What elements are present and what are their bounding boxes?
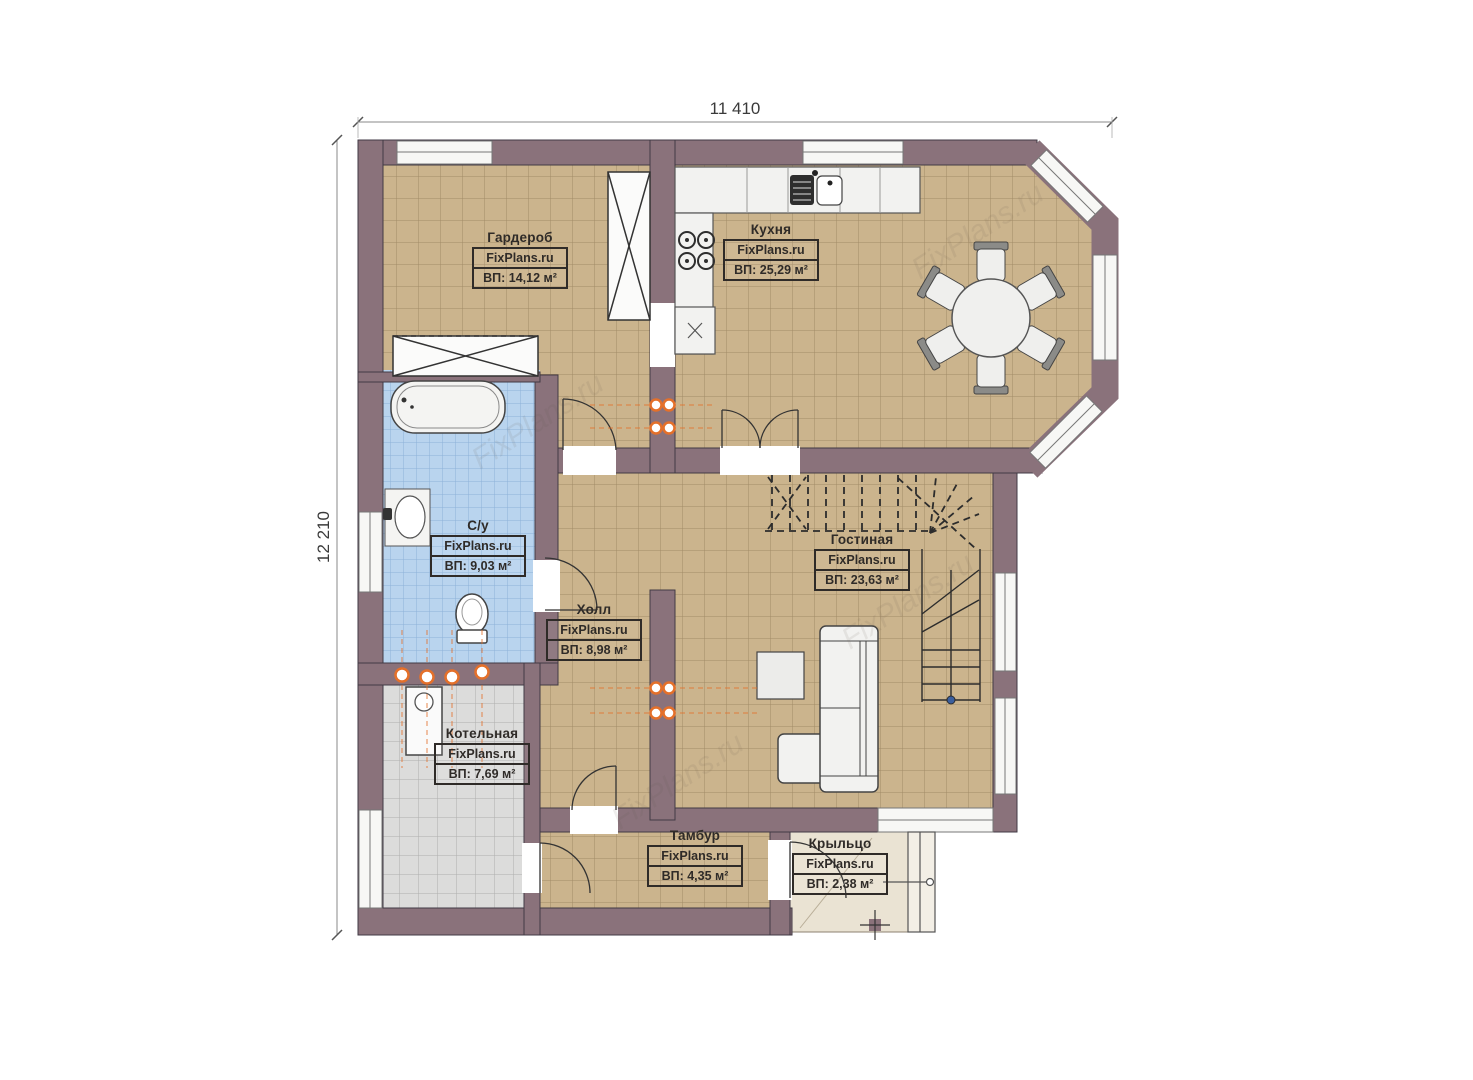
stair-newel-marker	[947, 696, 955, 704]
room-name: Гостиная	[814, 532, 910, 547]
room-info-box: FixPlans.ru ВП: 7,69 м²	[434, 743, 530, 785]
room-name: Котельная	[434, 726, 530, 741]
room-name: С/у	[430, 518, 526, 533]
room-brand: FixPlans.ru	[432, 537, 524, 555]
room-label-hall: Холл FixPlans.ru ВП: 8,98 м²	[546, 602, 642, 661]
room-area: ВП: 9,03 м²	[432, 555, 524, 575]
room-brand: FixPlans.ru	[725, 241, 817, 259]
toilet	[456, 594, 488, 643]
room-info-box: FixPlans.ru ВП: 9,03 м²	[430, 535, 526, 577]
room-name: Холл	[546, 602, 642, 617]
room-brand: FixPlans.ru	[649, 847, 741, 865]
room-area: ВП: 4,35 м²	[649, 865, 741, 885]
dimension-height-label: 12 210	[314, 511, 333, 563]
room-info-box: FixPlans.ru ВП: 8,98 м²	[546, 619, 642, 661]
floor-plan-drawing: 11 410 12 210 FixPlans.ru FixPlans.ru Fi…	[0, 0, 1473, 1080]
room-brand: FixPlans.ru	[548, 621, 640, 639]
opening-wardrobe-kitchen	[650, 303, 675, 367]
room-brand: FixPlans.ru	[436, 745, 528, 763]
room-area: ВП: 14,12 м²	[474, 267, 566, 287]
bathroom-sink	[383, 489, 430, 546]
room-area: ВП: 8,98 м²	[548, 639, 640, 659]
window-living-right-1	[995, 573, 1016, 671]
room-area: ВП: 25,29 м²	[725, 259, 817, 279]
room-label-porch: Крыльцо FixPlans.ru ВП: 2,38 м²	[792, 836, 888, 895]
room-label-living: Гостиная FixPlans.ru ВП: 23,63 м²	[814, 532, 910, 591]
room-brand: FixPlans.ru	[816, 551, 908, 569]
window-living-right-2	[995, 698, 1016, 794]
room-brand: FixPlans.ru	[794, 855, 886, 873]
room-area: ВП: 7,69 м²	[436, 763, 528, 783]
window-kitchen-top	[803, 141, 903, 164]
window-living-bottom	[878, 808, 993, 832]
room-info-box: FixPlans.ru ВП: 4,35 м²	[647, 845, 743, 887]
dining-table	[952, 279, 1030, 357]
window-wardrobe-top	[397, 141, 492, 164]
room-name: Гардероб	[472, 230, 568, 245]
room-name: Кухня	[723, 222, 819, 237]
floor-plan-canvas: 11 410 12 210 FixPlans.ru FixPlans.ru Fi…	[0, 0, 1473, 1080]
wardrobe-cabinet-tall	[608, 172, 650, 320]
room-info-box: FixPlans.ru ВП: 14,12 м²	[472, 247, 568, 289]
dimension-width-label: 11 410	[710, 99, 761, 118]
room-label-wardrobe: Гардероб FixPlans.ru ВП: 14,12 м²	[472, 230, 568, 289]
room-brand: FixPlans.ru	[474, 249, 566, 267]
room-area: ВП: 23,63 м²	[816, 569, 908, 589]
side-table	[757, 652, 804, 699]
room-info-box: FixPlans.ru ВП: 25,29 м²	[723, 239, 819, 281]
room-label-bathroom: С/у FixPlans.ru ВП: 9,03 м²	[430, 518, 526, 577]
room-label-tambour: Тамбур FixPlans.ru ВП: 4,35 м²	[647, 828, 743, 887]
boiler-floor	[383, 670, 524, 918]
window-bathroom-left	[359, 512, 382, 592]
bathtub	[391, 381, 505, 433]
wardrobe-cabinet-low	[393, 336, 538, 376]
room-info-box: FixPlans.ru ВП: 2,38 м²	[792, 853, 888, 895]
window-bay-right	[1093, 255, 1117, 360]
room-area: ВП: 2,38 м²	[794, 873, 886, 893]
room-info-box: FixPlans.ru ВП: 23,63 м²	[814, 549, 910, 591]
window-boiler-left	[359, 810, 382, 908]
room-name: Тамбур	[647, 828, 743, 843]
dishwasher	[675, 307, 715, 354]
room-name: Крыльцо	[792, 836, 888, 851]
room-label-boiler: Котельная FixPlans.ru ВП: 7,69 м²	[434, 726, 530, 785]
room-label-kitchen: Кухня FixPlans.ru ВП: 25,29 м²	[723, 222, 819, 281]
